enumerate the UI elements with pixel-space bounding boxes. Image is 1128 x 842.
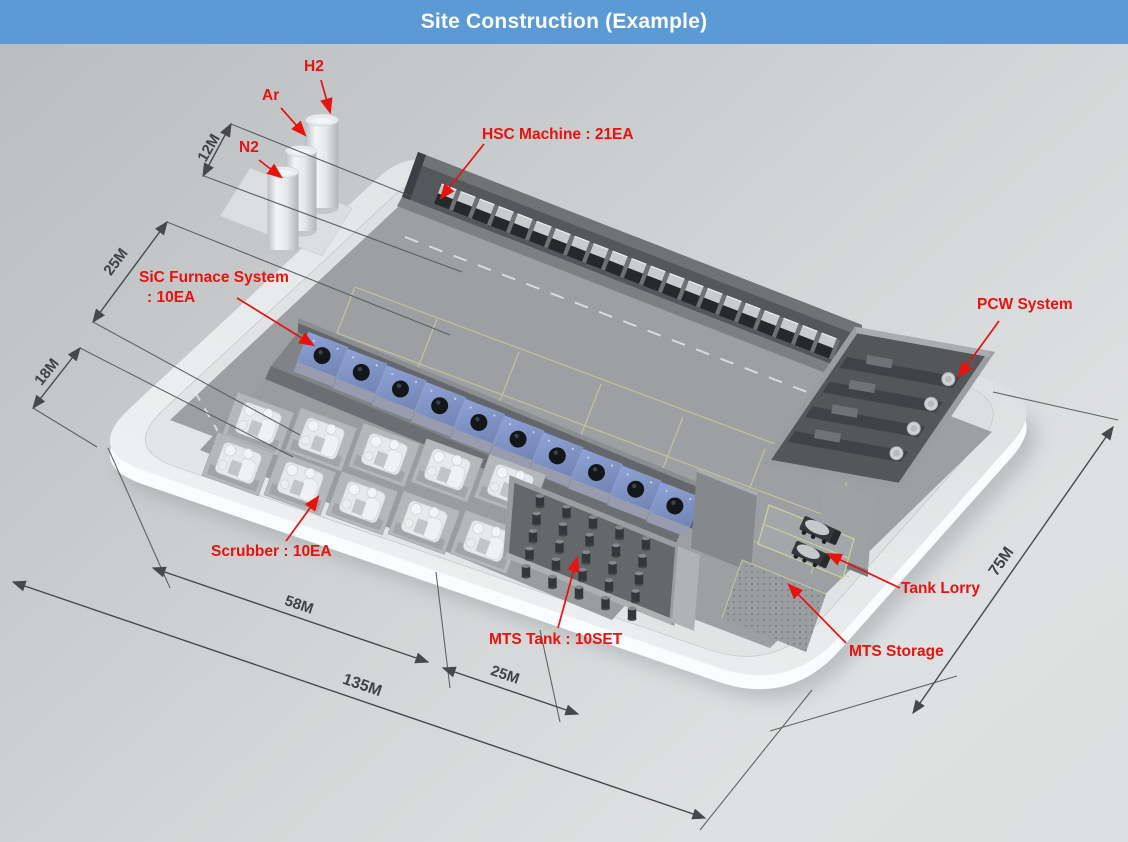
mts-tank-cylinder	[615, 526, 624, 540]
site-construction-slide: Site Construction (Example) H2 Ar N2 HSC…	[0, 0, 1128, 842]
mts-tank-cylinder	[578, 568, 587, 582]
label-hsc-machine: HSC Machine : 21EA	[482, 126, 634, 144]
gas-tank-N2	[268, 166, 299, 255]
label-mts-storage: MTS Storage	[849, 643, 944, 661]
mts-tank-cylinder	[525, 547, 534, 561]
label-mts-tank: MTS Tank : 10SET	[489, 631, 622, 649]
label-n2: N2	[239, 139, 259, 157]
label-h2: H2	[304, 58, 324, 76]
label-scrubber: Scrubber : 10EA	[211, 543, 332, 561]
mts-tank-cylinder	[548, 575, 557, 589]
mts-tank-cylinder	[641, 537, 650, 551]
mts-tank-cylinder	[631, 589, 640, 603]
mts-tank-cylinder	[581, 550, 590, 564]
mts-tank-cylinder	[611, 543, 620, 557]
mts-tank-cylinder	[638, 554, 647, 568]
label-ar: Ar	[262, 87, 279, 105]
dim-line-58m	[153, 568, 428, 662]
mts-tank-cylinder	[562, 505, 571, 519]
mts-tank-cylinder	[604, 578, 613, 592]
mts-tank-cylinder	[634, 572, 643, 586]
mts-tank-cylinder	[558, 522, 567, 536]
mts-tank-cylinder	[555, 540, 564, 554]
mts-tank-cylinder	[528, 529, 537, 543]
label-tank-lorry: Tank Lorry	[901, 580, 980, 598]
mts-tank-cylinder	[551, 557, 560, 571]
h2-arrow	[321, 80, 330, 112]
mts-tank-cylinder	[521, 564, 530, 578]
slide-title-bar: Site Construction (Example)	[0, 0, 1128, 44]
ar-arrow	[281, 108, 305, 135]
mts-tank-cylinder	[601, 596, 610, 610]
label-sic-furnace-line2: : 10EA	[147, 289, 195, 307]
mts-tank-cylinder	[588, 515, 597, 529]
mts-tank-cylinder	[535, 494, 544, 508]
mts-tank-cylinder	[532, 512, 541, 526]
mts-tank-cylinder	[627, 607, 636, 621]
label-sic-furnace-line1: SiC Furnace System	[139, 269, 289, 287]
mts-tank-cylinder	[608, 561, 617, 575]
label-pcw-system: PCW System	[977, 296, 1073, 314]
mts-tank-cylinder	[574, 585, 583, 599]
page-title: Site Construction (Example)	[421, 10, 708, 34]
mts-tank-cylinder	[585, 533, 594, 547]
